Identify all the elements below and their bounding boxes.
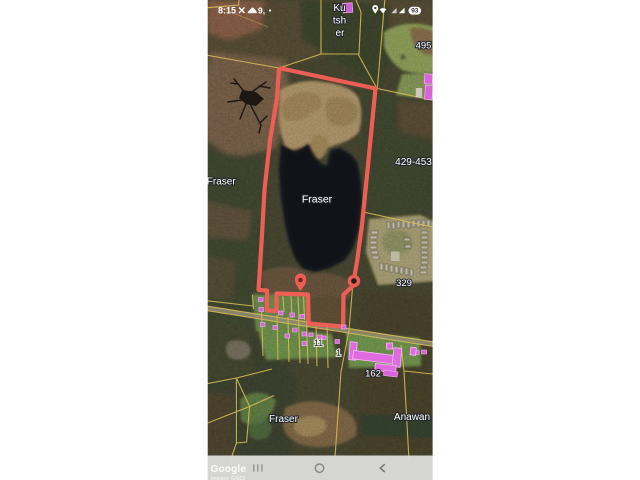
svg-text:Fraser: Fraser bbox=[269, 414, 299, 425]
svg-text:Google: Google bbox=[211, 464, 247, 475]
svg-text:8:15: 8:15 bbox=[218, 6, 236, 16]
svg-text:495: 495 bbox=[416, 41, 432, 52]
svg-text:429-453: 429-453 bbox=[395, 157, 432, 168]
svg-text:11: 11 bbox=[314, 338, 323, 348]
svg-text:tsh: tsh bbox=[333, 16, 346, 27]
svg-text:1: 1 bbox=[336, 348, 341, 358]
svg-text:93: 93 bbox=[411, 8, 419, 15]
svg-text:er: er bbox=[336, 28, 346, 39]
svg-text:162: 162 bbox=[365, 369, 381, 380]
svg-text:9,: 9, bbox=[258, 6, 265, 16]
svg-text:Ku: Ku bbox=[333, 3, 345, 14]
svg-text:Imagery ©2023: Imagery ©2023 bbox=[211, 475, 245, 480]
svg-text:Anawan: Anawan bbox=[394, 412, 430, 423]
svg-text:Fraser: Fraser bbox=[302, 194, 333, 206]
svg-text:329: 329 bbox=[396, 278, 412, 289]
svg-text:Fraser: Fraser bbox=[207, 176, 237, 187]
